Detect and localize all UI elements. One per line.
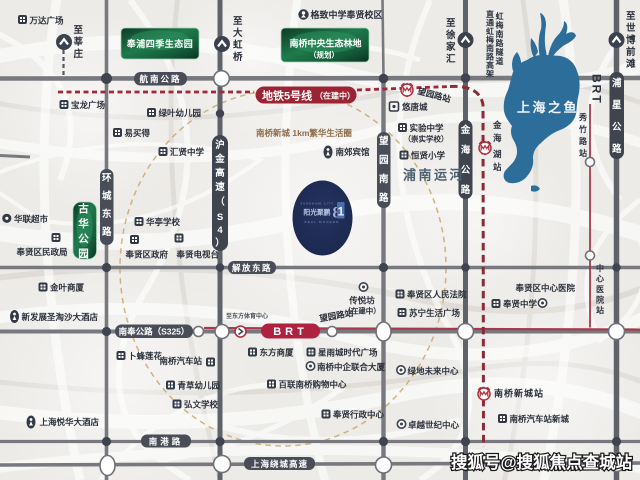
svg-text:南桥汽车站新城: 南桥汽车站新城	[510, 414, 570, 424]
svg-text:卜蜂莲花: 卜蜂莲花	[128, 351, 163, 361]
svg-text:苏宁生活广场: 苏宁生活广场	[409, 308, 461, 318]
svg-text:绿地未来中心: 绿地未来中心	[408, 366, 460, 376]
svg-text:绿叶幼儿园: 绿叶幼儿园	[159, 108, 202, 118]
svg-text:东方商厦: 东方商厦	[260, 348, 295, 358]
svg-text:解放东路: 解放东路	[232, 263, 272, 273]
svg-text:1: 1	[337, 205, 344, 219]
svg-text:（在建中）: （在建中）	[315, 91, 355, 101]
svg-text:直通虹梅南路高架: 直通虹梅南路高架	[485, 9, 495, 79]
svg-text:万达广场: 万达广场	[29, 16, 65, 26]
svg-text:青草幼儿园: 青草幼儿园	[178, 381, 221, 391]
svg-text:宝龙广场: 宝龙广场	[71, 100, 106, 110]
svg-text:奉贤区中心医院: 奉贤区中心医院	[515, 283, 576, 293]
svg-text:南奉公路（S325）: 南奉公路（S325）	[119, 327, 190, 337]
svg-text:百联南桥购物中心: 百联南桥购物中心	[279, 380, 348, 390]
svg-text:BRT: BRT	[590, 74, 604, 105]
svg-text:南桥中央生态林地: 南桥中央生态林地	[289, 38, 361, 49]
svg-text:地铁5号线: 地铁5号线	[262, 89, 312, 103]
svg-text:南桥新城 1km繁华生活圈: 南桥新城 1km繁华生活圈	[256, 128, 352, 138]
svg-text:华亭学校: 华亭学校	[146, 217, 181, 227]
svg-text:至世博前滩: 至世博前滩	[626, 11, 636, 70]
svg-text:上海悦华大酒店: 上海悦华大酒店	[40, 417, 100, 427]
svg-text:实验中学: 实验中学	[410, 123, 445, 133]
svg-text:奉贤中学: 奉贤中学	[502, 299, 538, 309]
svg-text:奉贤区民政局: 奉贤区民政局	[16, 247, 68, 257]
svg-text:传悦坊: 传悦坊	[348, 296, 375, 306]
svg-text:SUNSHINE CITY: SUNSHINE CITY	[300, 202, 334, 206]
svg-text:奉贤区政府: 奉贤区政府	[125, 250, 169, 260]
svg-text:阳光聚鹏: 阳光聚鹏	[303, 208, 330, 217]
svg-text:新发展圣淘沙大酒店: 新发展圣淘沙大酒店	[22, 312, 99, 322]
svg-text:格致中学奉贤校区: 格致中学奉贤校区	[311, 9, 383, 20]
svg-text:（崇实学校）: （崇实学校）	[404, 134, 449, 144]
svg-text:奉浦四季生态园: 奉浦四季生态园	[126, 38, 194, 49]
svg-text:航南公路: 航南公路	[139, 74, 181, 84]
svg-text:奉贤行政中心: 奉贤行政中心	[332, 410, 385, 420]
svg-text:（在建中）: （在建中）	[343, 306, 381, 316]
svg-text:南桥汽车站: 南桥汽车站	[160, 356, 203, 366]
svg-text:搜狐号@搜狐焦点查城站: 搜狐号@搜狐焦点查城站	[451, 452, 633, 472]
svg-text:浦南运河: 浦南运河	[403, 168, 465, 183]
svg-text:至徐家汇: 至徐家汇	[445, 18, 456, 65]
svg-text:悠唐城: 悠唐城	[401, 102, 428, 112]
svg-text:金叶商厦: 金叶商厦	[49, 283, 85, 293]
svg-text:至东方体育中心: 至东方体育中心	[226, 312, 268, 320]
svg-text:奉贤电视台: 奉贤电视台	[176, 250, 220, 260]
svg-text:星雨城时代广场: 星雨城时代广场	[318, 348, 378, 358]
svg-text:华联超市: 华联超市	[14, 214, 49, 224]
svg-text:易买得: 易买得	[125, 128, 151, 138]
svg-text:汇贤中学: 汇贤中学	[170, 147, 205, 157]
svg-text:上海绕城高速: 上海绕城高速	[251, 459, 308, 469]
svg-text:REAL MODERN: REAL MODERN	[304, 220, 339, 224]
svg-text:南桥新城站: 南桥新城站	[494, 388, 544, 399]
svg-text:至莘庄: 至莘庄	[74, 25, 84, 60]
svg-text:中心医院站: 中心医院站	[596, 263, 604, 315]
svg-text:南桥中企联合大厦: 南桥中企联合大厦	[317, 362, 386, 372]
svg-text:弘文学校: 弘文学校	[184, 400, 219, 410]
svg-text:恒贤小学: 恒贤小学	[411, 151, 446, 161]
svg-text:奉贤区人民法院: 奉贤区人民法院	[406, 290, 467, 300]
svg-text:南港路: 南港路	[149, 436, 184, 446]
svg-text:卓越世纪中心: 卓越世纪中心	[408, 420, 460, 430]
svg-text:上海之鱼: 上海之鱼	[517, 100, 579, 115]
svg-text:南郊宾馆: 南郊宾馆	[336, 147, 371, 157]
svg-text:BRT: BRT	[273, 326, 308, 338]
svg-text:（规划）: （规划）	[309, 50, 339, 60]
svg-text:虹梅南路隧道: 虹梅南路隧道	[496, 11, 505, 66]
svg-text:至大虹桥: 至大虹桥	[233, 16, 243, 63]
